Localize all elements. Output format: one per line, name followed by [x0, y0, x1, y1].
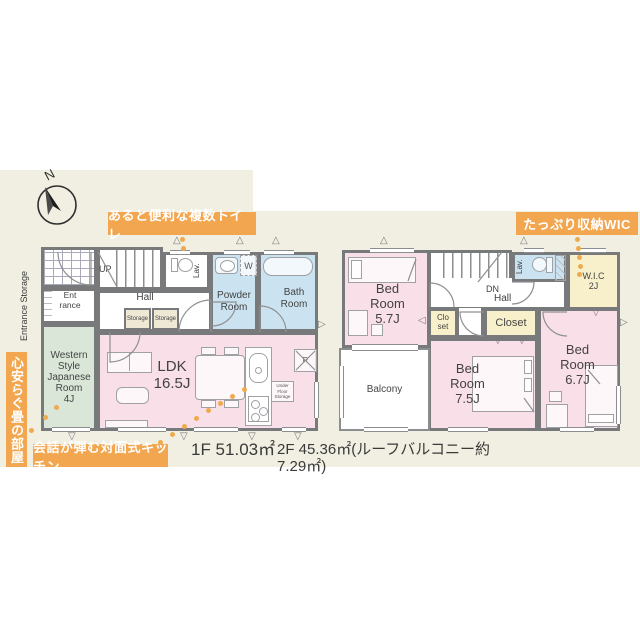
leader-dot	[43, 415, 48, 420]
callout-kitchen-text: 会話が弾む対面式キッチン	[33, 437, 168, 475]
leader-dot	[242, 387, 247, 392]
door-arcs-overlay	[0, 0, 640, 640]
leader-dot	[158, 440, 163, 445]
leader-dot	[194, 416, 199, 421]
leader-dot	[230, 394, 235, 399]
leader-dot	[577, 255, 582, 260]
floor2-area-text: 2F 45.36㎡(ルーフバルコニー約7.29㎡)	[277, 441, 517, 476]
leader-dot	[182, 424, 187, 429]
leader-dot	[206, 408, 211, 413]
callout-tatami-text: 心安らぐ畳の部屋	[7, 356, 26, 464]
callout-toilet: あると便利な複数トイレ	[108, 212, 256, 235]
leader-dot	[54, 405, 59, 410]
callout-wic-text: たっぷり収納WIC	[523, 214, 631, 233]
leader-dot	[170, 432, 175, 437]
leader-dot	[180, 237, 185, 242]
leader-dot	[29, 428, 34, 433]
leader-dot	[578, 264, 583, 269]
callout-kitchen: 会話が弾む対面式キッチン	[33, 444, 168, 467]
leader-dot	[575, 237, 580, 242]
leader-dot	[577, 272, 582, 277]
callout-wic: たっぷり収納WIC	[516, 212, 638, 235]
leader-dot	[181, 246, 186, 251]
callout-tatami: 心安らぐ畳の部屋	[6, 352, 27, 467]
leader-dot	[576, 246, 581, 251]
leader-dot	[218, 401, 223, 406]
floorplan-image: N Western Style Japanese Room 4J Storage…	[0, 0, 640, 640]
